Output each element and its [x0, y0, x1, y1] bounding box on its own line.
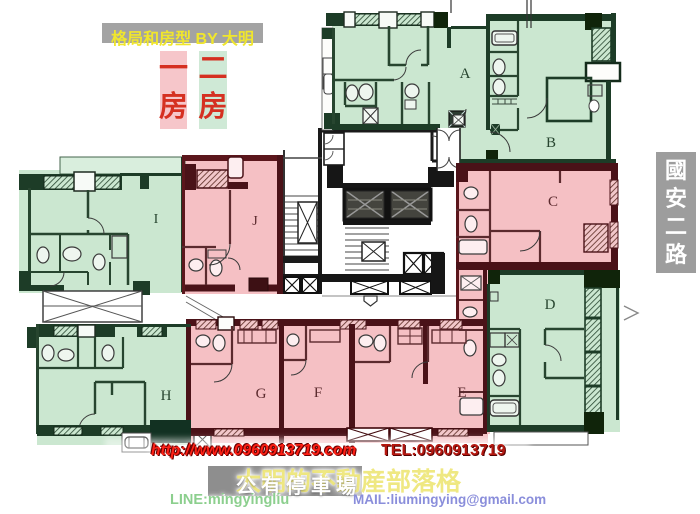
svg-text:F: F: [314, 385, 322, 401]
svg-text:D: D: [545, 297, 556, 313]
svg-text:J: J: [252, 214, 258, 229]
svg-text:H: H: [161, 388, 172, 404]
svg-text:I: I: [154, 212, 159, 227]
svg-text:A: A: [460, 66, 471, 82]
svg-text:E: E: [457, 385, 466, 401]
svg-text:G: G: [256, 386, 267, 402]
svg-text:B: B: [546, 135, 556, 151]
svg-text:C: C: [548, 194, 558, 210]
